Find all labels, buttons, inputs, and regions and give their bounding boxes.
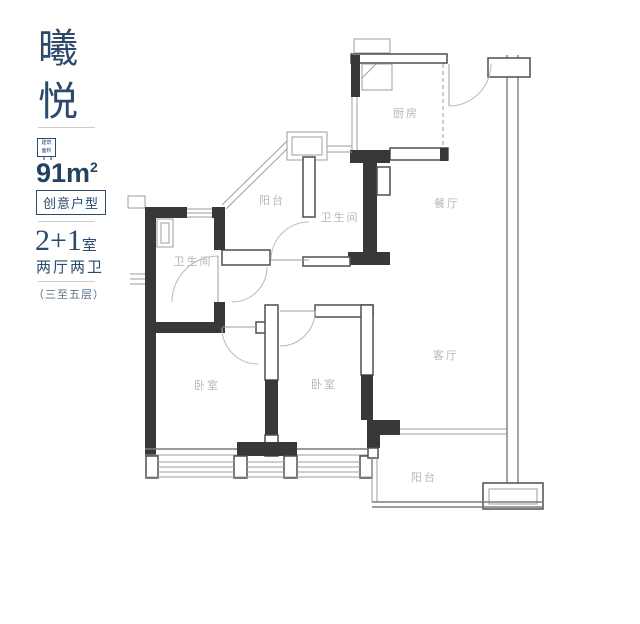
kitchen-bottom-jamb	[440, 148, 448, 161]
room-label-bath-left: 卫生间	[174, 254, 213, 268]
room-label-living: 客厅	[433, 348, 459, 362]
column-top-right	[488, 58, 530, 77]
kitchen-door-arc	[449, 64, 491, 106]
wall-stub	[128, 196, 145, 208]
bedroom-left-door-arc	[222, 328, 258, 364]
shaft-wall-bottom	[348, 252, 390, 265]
bedroom-divider-upper	[265, 305, 278, 380]
wall-stub	[130, 274, 145, 284]
wall-stub	[354, 39, 390, 53]
kitchen-left-window	[352, 97, 357, 150]
bath-left-window	[187, 209, 212, 217]
balcony-left-jamb	[368, 448, 378, 458]
kitchen-left-pier	[351, 55, 360, 97]
kitchen-sink	[362, 64, 392, 90]
room-label-kitchen: 厨房	[393, 107, 419, 120]
balcony-top-window-box	[287, 132, 327, 160]
window-right	[297, 462, 360, 472]
kitchen-bottom-wall	[390, 148, 448, 160]
bath-left-top-wall	[145, 207, 187, 218]
bedroom-left-top-wall	[145, 322, 225, 333]
room-label-balcony-bottom: 阳台	[411, 470, 437, 484]
bedroom-center-right-wall	[361, 305, 373, 375]
column-bottom-right	[483, 483, 543, 509]
floor-plan: 厨房 餐厅 阳台 卫生间 卫生间 卧室 卧室 客厅 阳台	[0, 0, 640, 624]
bay-window-pier	[237, 442, 297, 456]
window-center	[247, 462, 284, 472]
window-jamb	[234, 456, 247, 478]
bedroom-center-right-pier	[361, 375, 373, 420]
living-balcony-window	[400, 429, 507, 434]
bath-left-right-wall	[214, 207, 225, 250]
bedroom-center-door-arc	[280, 311, 315, 346]
window-jamb	[360, 456, 372, 478]
balcony-kitchen-link	[327, 146, 352, 152]
shaft-wall-vertical	[363, 163, 377, 252]
room-label-balcony-top: 阳台	[259, 193, 285, 207]
window-jamb	[146, 456, 158, 478]
living-balcony-pier	[367, 420, 380, 448]
bath-center-bottom-wall	[303, 257, 350, 266]
balcony-bottom-wall	[222, 250, 270, 265]
shaft-niche	[377, 167, 390, 195]
window-jamb	[284, 456, 297, 478]
room-label-dining: 餐厅	[434, 196, 460, 210]
bath-center-door-arc	[271, 222, 309, 260]
hall-door-arc	[232, 267, 267, 302]
room-label-bath-center: 卫生间	[321, 210, 360, 224]
shaft-wall-top	[350, 150, 390, 163]
room-label-bedroom-left: 卧室	[194, 378, 220, 392]
window-left	[158, 462, 234, 472]
kitchen-top-wall	[351, 54, 447, 63]
room-label-bedroom-center: 卧室	[311, 377, 337, 391]
bedroom-divider-lower	[265, 380, 278, 435]
bath-center-left-wall	[303, 157, 315, 217]
